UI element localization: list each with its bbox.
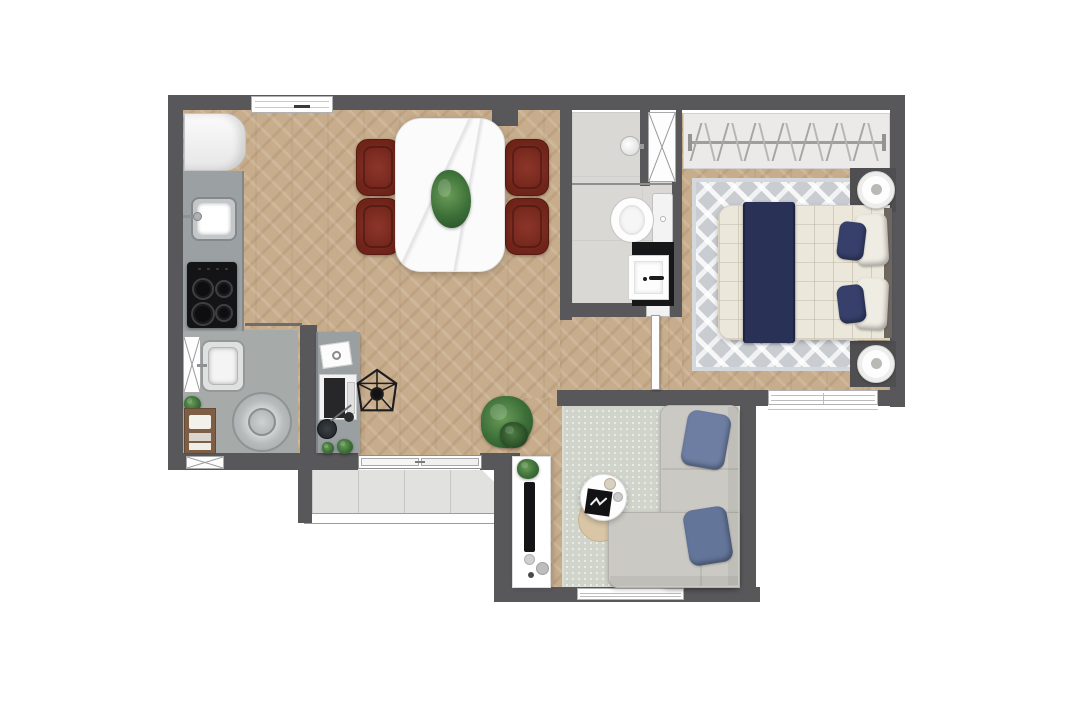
coffee-table-cup — [613, 492, 623, 502]
wall-office-partition — [300, 325, 317, 460]
bedroom-window — [768, 390, 878, 405]
floor-plan — [0, 0, 1080, 711]
console-decor — [528, 572, 534, 578]
closet-hangers — [695, 120, 881, 164]
rail-end-left — [688, 134, 692, 151]
cooktop-burners — [187, 262, 237, 328]
centerpiece-plant — [431, 170, 471, 228]
hallway-plant-leaves — [500, 422, 528, 448]
dining-chair — [505, 198, 549, 255]
dining-chair — [356, 139, 400, 196]
nightstand-round — [857, 345, 895, 383]
vanity-faucet — [649, 276, 664, 280]
washing-machine — [232, 392, 292, 452]
desk-bowl — [317, 419, 337, 439]
coffee-table-tray — [584, 488, 612, 516]
sofa-throw-pillow — [682, 505, 734, 567]
living-room-window — [577, 588, 684, 600]
wall-left — [168, 95, 183, 470]
closet — [683, 113, 890, 169]
cooktop-burner — [191, 302, 215, 326]
console-plant — [517, 459, 539, 479]
nightstand-round — [857, 171, 895, 209]
desk-plant-1 — [322, 442, 334, 454]
coffee-table-cup — [604, 478, 616, 490]
console-decor — [536, 562, 549, 575]
shower-glass-partition — [572, 183, 672, 185]
vanity-sink — [628, 255, 669, 300]
wall-living-left — [494, 455, 512, 602]
utility-sink — [201, 340, 245, 392]
desk-notebook — [319, 341, 352, 369]
wall-living-right — [740, 400, 756, 602]
tv — [524, 482, 535, 552]
bed-pillow-navy — [836, 283, 867, 324]
office-chair — [352, 366, 402, 420]
refrigerator — [184, 113, 246, 171]
cooktop — [187, 262, 237, 328]
bedroom-window-sill — [768, 405, 878, 410]
shower-head — [620, 136, 640, 156]
cooktop-burner — [192, 278, 214, 300]
bed-pillow-navy — [836, 220, 867, 261]
door-handle — [294, 105, 310, 108]
wall-balcony-left-stub — [298, 470, 312, 523]
cooktop-burner — [215, 280, 233, 298]
hallway-floor — [560, 317, 682, 393]
balcony-floor — [312, 470, 512, 513]
console-decor — [524, 554, 535, 565]
toilet-bowl — [610, 197, 654, 243]
balcony-sliding-door — [358, 455, 482, 469]
kitchen-faucet-knob — [193, 212, 202, 221]
laundry-window — [186, 456, 224, 469]
bathroom-duct-shaft — [648, 112, 676, 182]
cooktop-burner — [215, 304, 233, 322]
dining-chair — [505, 139, 549, 196]
bed-runner — [743, 202, 795, 343]
wall-bathroom-left — [560, 110, 572, 320]
entrance-door — [251, 96, 333, 113]
balcony-parapet — [304, 513, 512, 524]
toilet-tank — [652, 193, 673, 244]
dining-chair — [356, 198, 400, 255]
wall-column — [492, 95, 518, 126]
counter-divider-line — [245, 323, 302, 326]
desk-plant-2 — [337, 439, 353, 454]
wall-bedroom-left-upper — [676, 110, 682, 182]
towel-shelf — [184, 408, 216, 454]
bathroom-door-leaf — [651, 315, 660, 390]
